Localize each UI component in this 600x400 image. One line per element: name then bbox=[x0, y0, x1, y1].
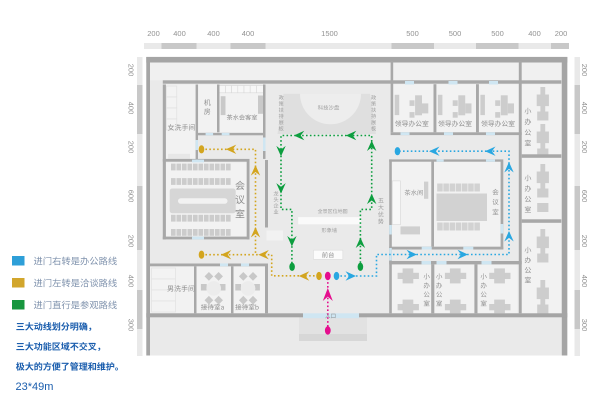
svg-text:200: 200 bbox=[127, 141, 136, 154]
svg-text:500: 500 bbox=[406, 29, 419, 38]
svg-text:300: 300 bbox=[127, 319, 136, 332]
svg-text:200: 200 bbox=[147, 29, 160, 38]
svg-text:400: 400 bbox=[580, 275, 589, 288]
svg-text:400: 400 bbox=[127, 275, 136, 288]
svg-text:400: 400 bbox=[173, 29, 186, 38]
svg-text:1500: 1500 bbox=[321, 29, 338, 38]
svg-text:200: 200 bbox=[580, 141, 589, 154]
svg-text:600: 600 bbox=[127, 190, 136, 203]
svg-text:200: 200 bbox=[127, 64, 136, 77]
svg-text:200: 200 bbox=[580, 235, 589, 248]
svg-text:500: 500 bbox=[449, 29, 462, 38]
svg-text:300: 300 bbox=[580, 319, 589, 332]
svg-text:400: 400 bbox=[242, 29, 255, 38]
svg-text:200: 200 bbox=[127, 235, 136, 248]
svg-text:400: 400 bbox=[580, 102, 589, 115]
svg-text:400: 400 bbox=[127, 102, 136, 115]
svg-text:200: 200 bbox=[555, 29, 568, 38]
svg-text:500: 500 bbox=[491, 29, 504, 38]
svg-text:23*49m: 23*49m bbox=[16, 381, 54, 393]
svg-text:600: 600 bbox=[580, 190, 589, 203]
svg-text:400: 400 bbox=[528, 29, 541, 38]
svg-text:200: 200 bbox=[580, 64, 589, 77]
svg-text:400: 400 bbox=[207, 29, 220, 38]
